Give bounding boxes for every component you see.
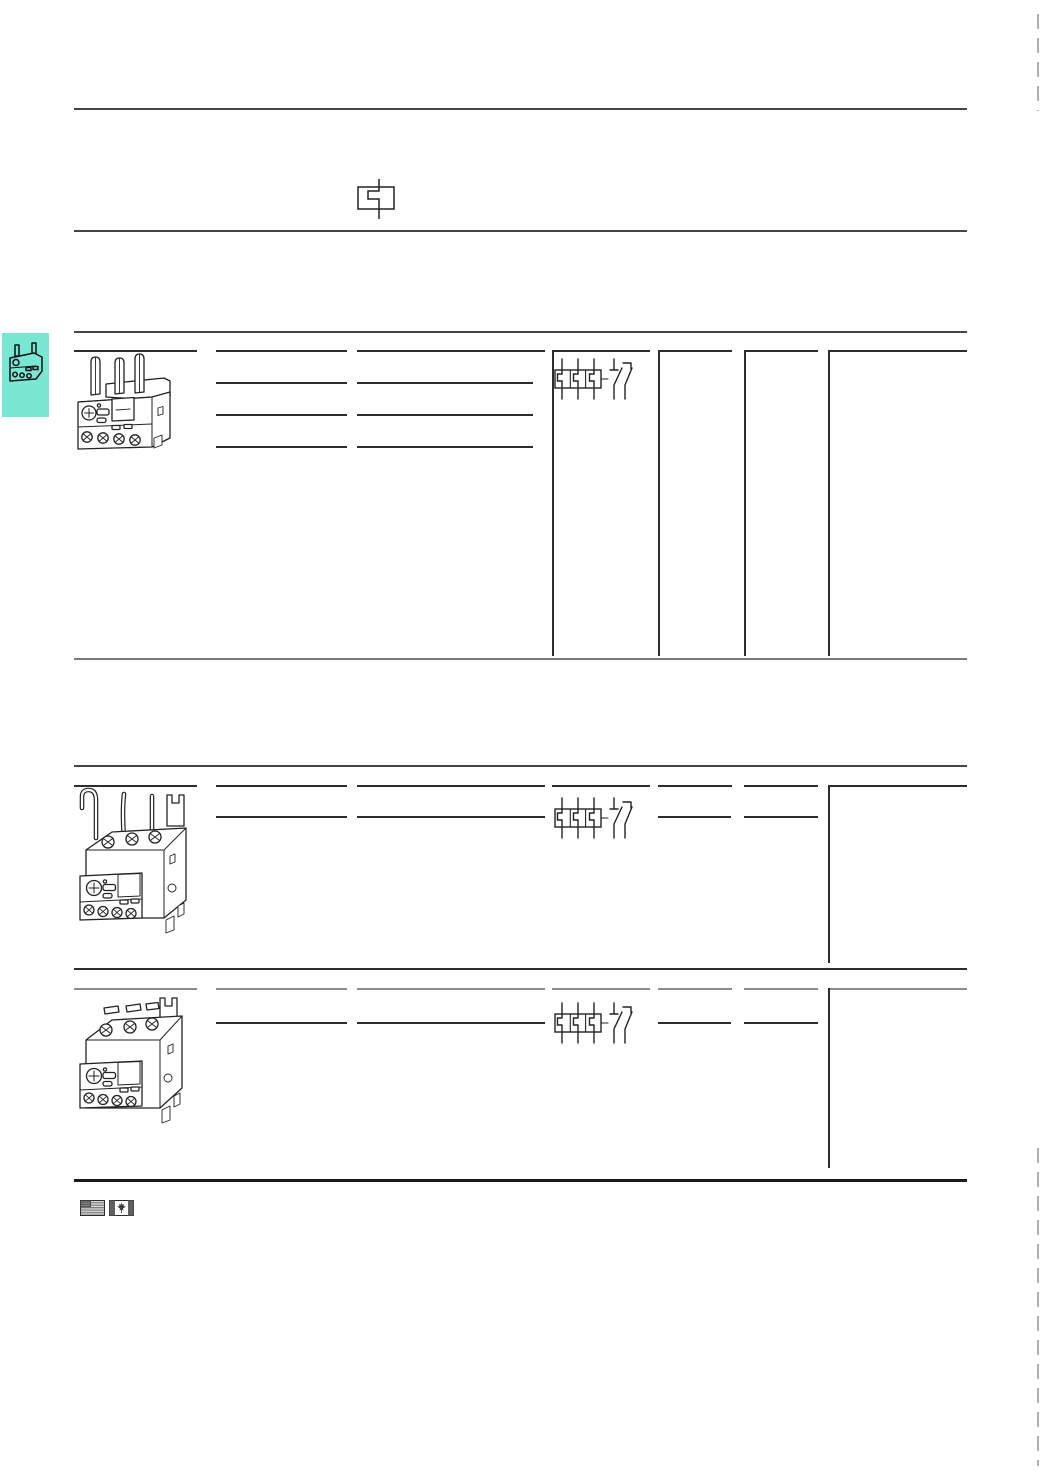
row-rule: [357, 382, 533, 384]
row-rule: [216, 446, 347, 448]
column-header-rule: [552, 988, 650, 990]
section-top-rule: [74, 331, 967, 333]
dashed-edge-mark-bottom: [1037, 1148, 1040, 1466]
row-rule: [216, 1022, 347, 1024]
row-rule: [744, 1022, 818, 1024]
column-header-rule: [828, 785, 967, 787]
column-header-rule: [357, 350, 545, 352]
section-bottom-rule: [74, 1179, 967, 1182]
product-image-overload-relay-direct-mount: [72, 350, 176, 458]
column-header-rule: [744, 350, 818, 352]
section-bottom-rule: [74, 658, 967, 660]
section-bottom-rule: [74, 968, 967, 970]
column-header-rule: [658, 988, 732, 990]
column-header-rule: [552, 350, 650, 352]
row-rule: [216, 414, 347, 416]
row-rule: [216, 382, 347, 384]
column-header-rule: [828, 988, 967, 990]
circuit-symbol-3-pole-overload: [552, 1001, 636, 1045]
header-top-rule: [74, 108, 967, 110]
row-rule: [658, 816, 731, 818]
column-divider-line: [828, 988, 830, 1168]
header-bottom-rule: [74, 230, 967, 232]
row-rule: [357, 816, 545, 818]
row-rule: [357, 446, 533, 448]
thermal-overload-element-symbol-icon: [354, 177, 398, 221]
column-header-rule: [744, 988, 818, 990]
row-rule: [357, 1022, 545, 1024]
column-divider-line: [828, 350, 830, 656]
column-header-rule: [552, 785, 650, 787]
column-header-rule: [357, 785, 545, 787]
row-rule: [216, 816, 347, 818]
row-rule: [658, 1022, 731, 1024]
section-top-rule: [74, 765, 967, 767]
us-flag-icon: [80, 1200, 105, 1216]
column-divider-line: [658, 350, 660, 656]
column-header-rule: [357, 988, 545, 990]
column-header-rule: [658, 350, 732, 352]
dashed-edge-mark-top: [1037, 14, 1040, 111]
column-header-rule: [216, 988, 347, 990]
circuit-symbol-3-pole-overload: [552, 796, 636, 840]
row-rule: [744, 816, 818, 818]
overload-relay-thumbnail-icon: [6, 341, 46, 393]
canada-flag-icon: [109, 1200, 134, 1216]
column-header-rule: [744, 785, 818, 787]
column-header-rule: [74, 988, 197, 990]
column-header-rule: [216, 785, 347, 787]
row-rule: [357, 414, 533, 416]
column-divider-line: [828, 785, 830, 963]
thumb-index-tab: [2, 333, 49, 417]
catalog-page: [0, 0, 1041, 1471]
column-header-rule: [828, 350, 967, 352]
column-divider-line: [744, 350, 746, 656]
column-header-rule: [216, 350, 347, 352]
product-image-overload-relay-separate-mount: [76, 992, 194, 1142]
circuit-symbol-3-pole-overload: [552, 357, 636, 401]
column-header-rule: [658, 785, 732, 787]
product-image-overload-relay-separate-mount-wired: [74, 782, 198, 950]
